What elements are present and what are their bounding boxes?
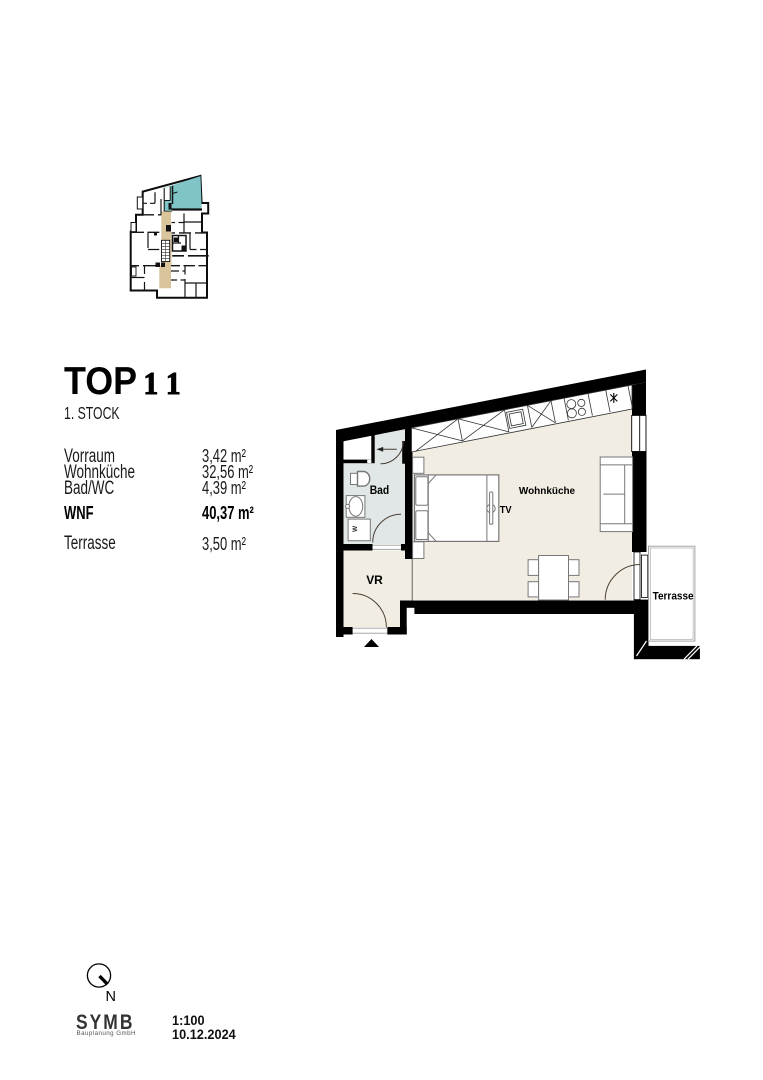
svg-text:Bad: Bad bbox=[370, 485, 390, 497]
svg-text:VR: VR bbox=[366, 573, 383, 587]
svg-text:N: N bbox=[106, 989, 116, 1005]
svg-text:Wohnküche: Wohnküche bbox=[519, 485, 575, 497]
svg-text:W: W bbox=[352, 525, 359, 532]
svg-text:TV: TV bbox=[500, 504, 512, 516]
svg-text:Terrasse: Terrasse bbox=[653, 590, 694, 602]
